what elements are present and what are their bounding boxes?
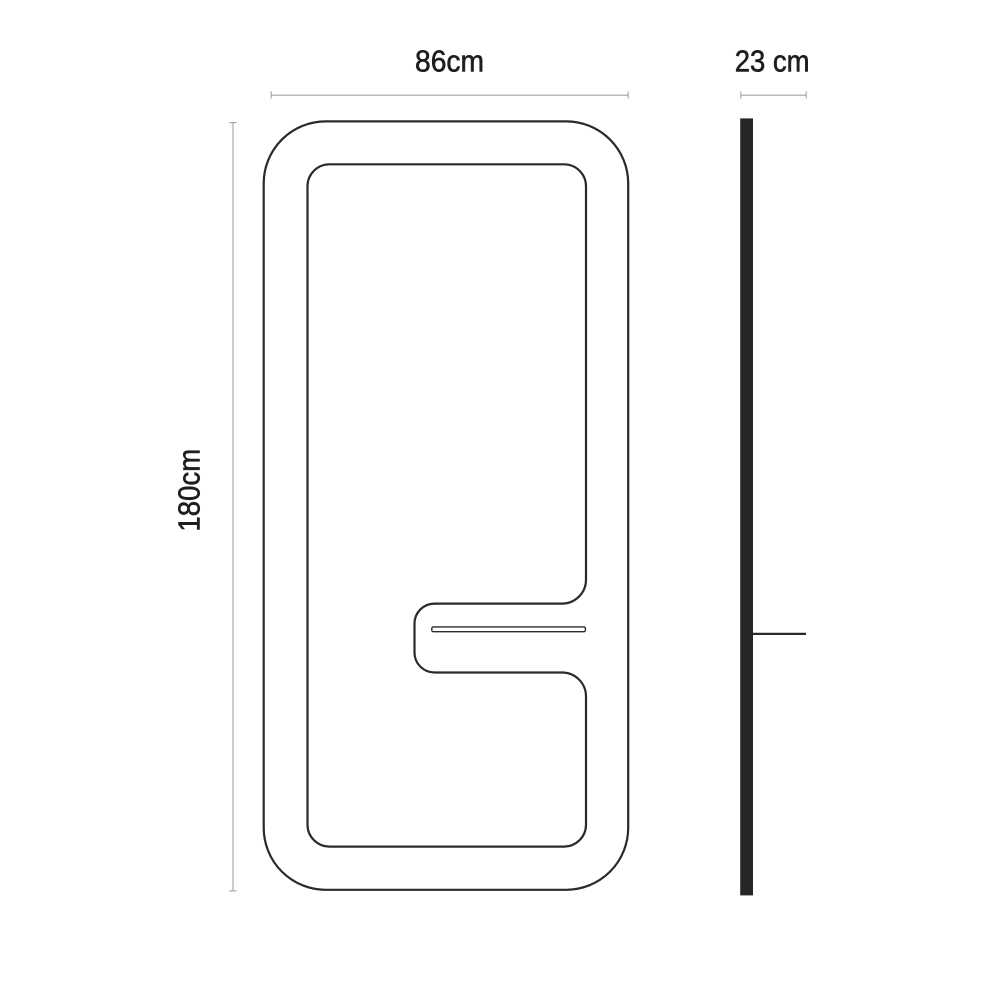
svg-text:23 cm: 23 cm <box>735 44 810 79</box>
svg-text:86cm: 86cm <box>415 44 484 79</box>
svg-text:180cm: 180cm <box>172 449 207 532</box>
